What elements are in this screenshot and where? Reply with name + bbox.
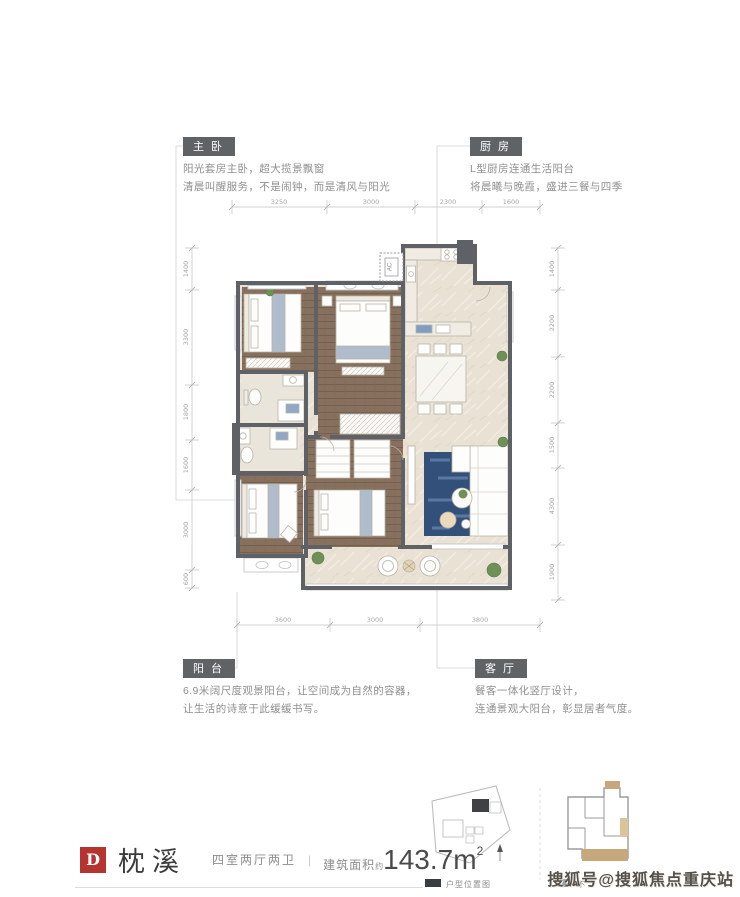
ac-platform: AC xyxy=(380,253,403,281)
living-line1: 餐客一体化竖厅设计， xyxy=(475,683,639,701)
svg-text:3300: 3300 xyxy=(182,329,190,346)
svg-text:3600: 3600 xyxy=(275,616,292,624)
annotation-balcony: 阳台 6.9米阔尺度观景阳台，让空间成为自然的容器， 让生活的诗意于此缓缓书写。 xyxy=(183,659,417,718)
unit-letter-badge: D xyxy=(80,847,106,873)
svg-text:1900: 1900 xyxy=(548,564,556,581)
living-line2: 连通景观大阳台，彰显居者气度。 xyxy=(475,701,639,719)
title-underline xyxy=(75,887,423,888)
master-line2: 清晨叫醒服务，不是闹钟，而是清风与阳光 xyxy=(183,179,390,197)
svg-text:3000: 3000 xyxy=(367,616,384,624)
svg-text:1600: 1600 xyxy=(503,198,520,206)
svg-text:2300: 2300 xyxy=(440,198,457,206)
kitchen-line1: L型厨房连通生活阳台 xyxy=(470,161,623,179)
floor-plan-svg: AC 3250 3000 2300 1600 3600 xyxy=(0,0,740,897)
unit-name: 枕溪 xyxy=(118,840,186,879)
svg-text:1400: 1400 xyxy=(182,261,190,278)
unit-layout: 四室两厅两卫 xyxy=(212,851,296,868)
svg-text:3000: 3000 xyxy=(363,198,380,206)
annotation-living: 客厅 餐客一体化竖厅设计， 连通景观大阳台，彰显居者气度。 xyxy=(475,659,639,718)
master-tag: 主卧 xyxy=(183,137,235,156)
north-arrow-icon xyxy=(497,844,503,861)
kitchen-line2: 将晨曦与晚霞，盛进三餐与四季 xyxy=(470,179,623,197)
ac-label: AC xyxy=(388,262,394,271)
title-separator: | xyxy=(308,853,311,867)
balcony-tag: 阳台 xyxy=(183,659,235,678)
svg-text:1800: 1800 xyxy=(182,404,190,421)
svg-text:600: 600 xyxy=(182,573,190,585)
master-line1: 阳光套房主卧，超大揽景飘窗 xyxy=(183,161,390,179)
balcony-line1: 6.9米阔尺度观景阳台，让空间成为自然的容器， xyxy=(183,683,417,701)
svg-text:1400: 1400 xyxy=(548,261,556,278)
svg-text:2200: 2200 xyxy=(548,382,556,399)
annotation-kitchen: 厨房 L型厨房连通生活阳台 将晨曦与晚霞，盛进三餐与四季 xyxy=(470,137,623,196)
mini-floorplan-diagram xyxy=(568,781,628,861)
svg-text:3000: 3000 xyxy=(182,522,190,539)
svg-text:3250: 3250 xyxy=(271,198,288,206)
svg-text:3800: 3800 xyxy=(472,616,489,624)
annotation-master: 主卧 阳光套房主卧，超大揽景飘窗 清晨叫醒服务，不是闹钟，而是清风与阳光 xyxy=(183,137,390,196)
area-approx: 约 xyxy=(375,862,383,871)
area-prefix: 建筑面积 xyxy=(323,858,375,872)
svg-text:1500: 1500 xyxy=(548,437,556,454)
title-block: D 枕溪 四室两厅两卫 | 建筑面积约143.7m2 xyxy=(80,840,483,879)
kitchen-tag: 厨房 xyxy=(470,137,522,156)
unit-highlight xyxy=(472,799,489,812)
area-value: 143.7m xyxy=(383,844,476,875)
svg-text:4300: 4300 xyxy=(548,498,556,515)
bed-bottomleft xyxy=(242,484,297,542)
kitchen-flue xyxy=(457,240,473,264)
location-caption: 户型位置图 xyxy=(446,879,491,890)
watermark-text: 搜狐号@搜狐焦点重庆站 xyxy=(547,866,734,890)
balcony-line2: 让生活的诗意于此缓缓书写。 xyxy=(183,701,417,719)
living-tag: 客厅 xyxy=(475,659,527,678)
svg-text:2200: 2200 xyxy=(548,315,556,332)
svg-text:1600: 1600 xyxy=(182,457,190,474)
bed-bottommiddle xyxy=(314,490,385,536)
floorplan-page: { "annotations": { "master": {"tag":"主卧"… xyxy=(0,0,740,897)
area-superscript: 2 xyxy=(477,844,484,858)
legend-swatch-dark xyxy=(425,879,441,887)
